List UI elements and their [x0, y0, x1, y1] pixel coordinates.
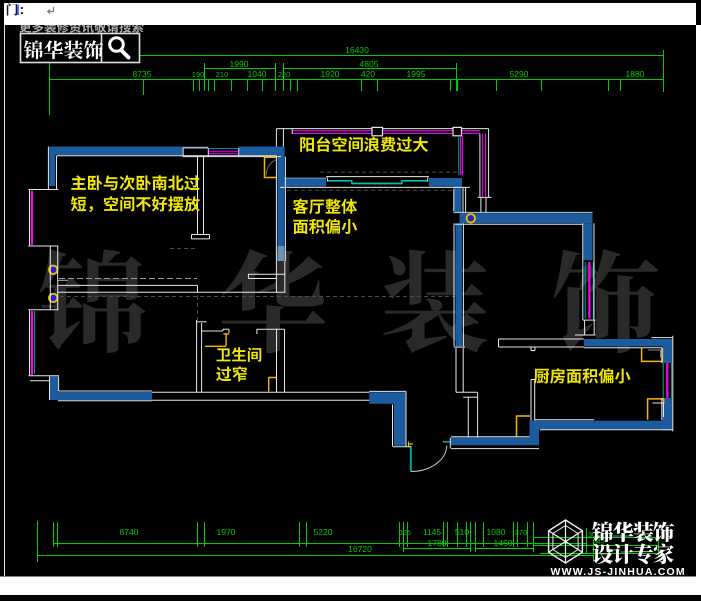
svg-text:210: 210: [216, 70, 229, 79]
svg-text:8740: 8740: [120, 527, 139, 537]
svg-text:4805: 4805: [360, 59, 379, 69]
svg-text:16720: 16720: [348, 544, 372, 554]
svg-text:1990: 1990: [230, 59, 249, 69]
svg-text:1080: 1080: [487, 527, 506, 537]
svg-text:1995: 1995: [407, 69, 426, 79]
svg-text:1145: 1145: [423, 527, 442, 537]
svg-text:1970: 1970: [217, 527, 236, 537]
svg-text:1880: 1880: [626, 69, 645, 79]
svg-text:220: 220: [278, 70, 291, 79]
svg-text:1780: 1780: [428, 538, 447, 548]
svg-text:370: 370: [515, 528, 528, 537]
svg-text:1920: 1920: [321, 69, 340, 79]
svg-text:510: 510: [455, 527, 469, 537]
svg-text:5290: 5290: [510, 69, 529, 79]
svg-text:125: 125: [399, 530, 411, 537]
svg-text:5220: 5220: [314, 527, 333, 537]
svg-text:420: 420: [361, 69, 375, 79]
svg-text:8735: 8735: [133, 69, 152, 79]
svg-text:190: 190: [192, 70, 205, 79]
svg-text:1450: 1450: [494, 538, 513, 548]
svg-text:WWW.JS-JINHUA.COM: WWW.JS-JINHUA.COM: [551, 566, 686, 578]
svg-text:16430: 16430: [345, 45, 369, 55]
svg-text:1040: 1040: [248, 69, 267, 79]
